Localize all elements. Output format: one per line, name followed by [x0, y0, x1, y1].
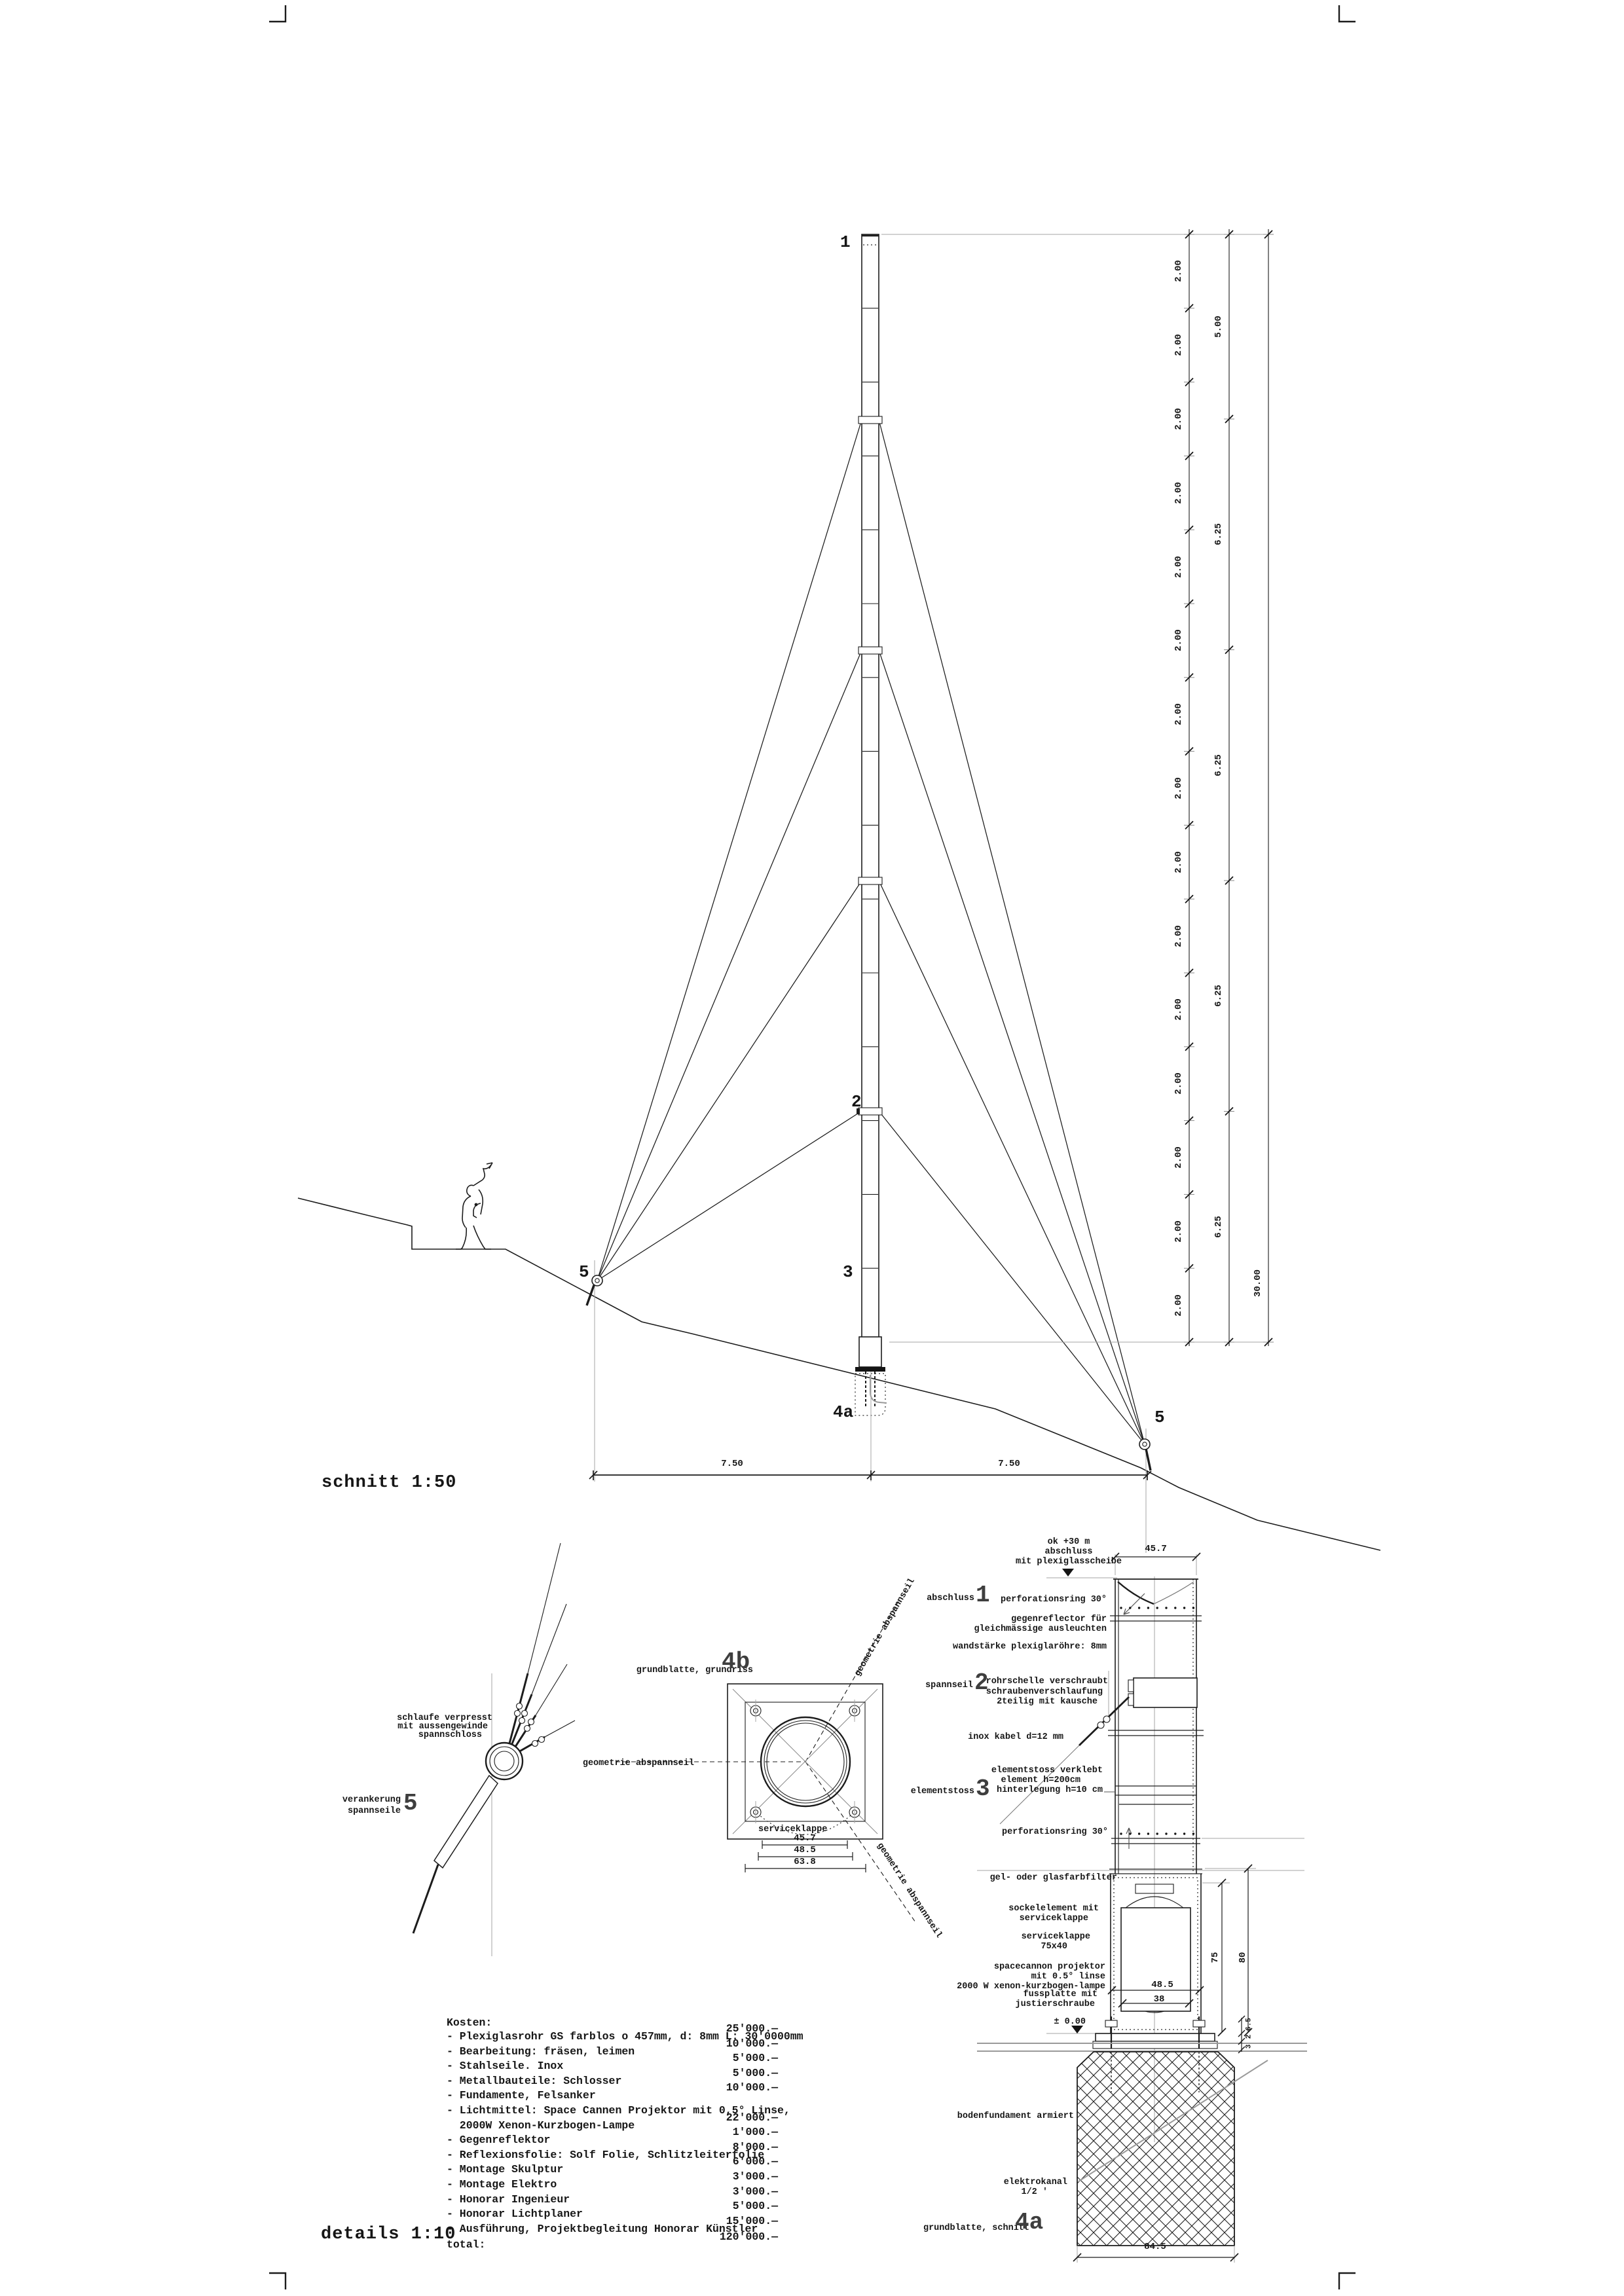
- lbl-hatch-1: serviceklappe: [1022, 1932, 1090, 1942]
- plan-dim-3: 63.8: [794, 1857, 816, 1867]
- cost-item: - Fundamente, Felsanker: [447, 2089, 596, 2102]
- col-callout-3-label: elementstoss: [911, 1787, 974, 1797]
- dim-label-2m: 2.00: [1173, 1294, 1184, 1317]
- col-callout-2-label: spannseil: [925, 1681, 973, 1691]
- cost-price: 6'000.—: [733, 2155, 778, 2168]
- callout-5-left: 5: [579, 1262, 589, 1282]
- cost-item: - Honorar Lichtplaner: [447, 2208, 583, 2220]
- dim-inner-width: 48.5: [1151, 1980, 1173, 1990]
- perforation-dot: [1129, 1607, 1131, 1609]
- perforation-dot: [1183, 1607, 1185, 1609]
- lbl-joint-2: element h=200cm: [1001, 1776, 1080, 1786]
- lbl-conduit-2: 1/2 ': [1021, 2187, 1048, 2198]
- section-drawing: [298, 229, 1380, 1553]
- dim-label-2m: 2.00: [1173, 334, 1184, 356]
- section-title: schnitt 1:50: [322, 1473, 456, 1493]
- perforation-dot: [1138, 1832, 1140, 1834]
- cost-item: - Montage Elektro: [447, 2178, 557, 2191]
- col-top-note-3: mit plexiglasscheibe: [1016, 1557, 1122, 1567]
- cost-price: 22'000.—: [726, 2111, 778, 2124]
- dim-label-2m: 2.00: [1173, 1146, 1184, 1169]
- anchor-note-3: spannschloss: [418, 1730, 482, 1741]
- drawing-sheet: schnitt 1:50 details 1:10 1 2 3 4a 5 5 7…: [0, 0, 1624, 2296]
- lbl-socket-2: serviceklappe: [1020, 1914, 1088, 1924]
- costs-total-label: total:: [447, 2238, 485, 2251]
- cost-price: 5'000.—: [733, 2052, 778, 2064]
- cost-item: - Gegenreflektor: [447, 2134, 550, 2146]
- base-dim-left: 7.50: [721, 1459, 743, 1469]
- mast: [862, 234, 879, 1342]
- plan-axis-label: geometrie abspannseil: [583, 1758, 694, 1769]
- costs-heading: Kosten:: [447, 2016, 492, 2029]
- dim-plate-1: 6.5: [1246, 2018, 1254, 2031]
- perforation-dot: [1192, 1607, 1194, 1609]
- callout-4a: 4a: [833, 1402, 853, 1422]
- dim-label-2m: 2.00: [1173, 1072, 1184, 1095]
- dim-label-mid: 5.00: [1213, 316, 1224, 338]
- cost-price: 10'000.—: [726, 2081, 778, 2094]
- lbl-reflector-2: gleichmässige ausleuchten: [974, 1624, 1107, 1635]
- cost-price: 5'000.—: [733, 2200, 778, 2212]
- lbl-foot-1: fussplatte mit: [1024, 1990, 1098, 2000]
- dim-label-2m: 2.00: [1173, 999, 1184, 1021]
- perforation-dot: [1183, 1832, 1185, 1834]
- dim-label-2m: 2.00: [1173, 408, 1184, 430]
- cost-item: - Reflexionsfolie: Solf Folie, Schlitzle…: [447, 2149, 764, 2161]
- col-callout-3: 3: [976, 1776, 990, 1803]
- cost-item: - Metallbauteile: Schlosser: [447, 2075, 621, 2087]
- rings: [1108, 1616, 1204, 1874]
- cost-price: 5'000.—: [733, 2067, 778, 2079]
- cost-item: - Stahlseile. Inox: [447, 2060, 563, 2072]
- person-figure: [456, 1163, 492, 1249]
- cost-item: - Ausführung, Projektbegleitung Honorar …: [447, 2223, 758, 2235]
- details-title: details 1:10: [321, 2225, 456, 2245]
- col-top-note-2: abschluss: [1045, 1547, 1093, 1558]
- dim-label-mid: 6.25: [1213, 1216, 1224, 1238]
- dim-plate-3: 3: [1246, 2045, 1254, 2049]
- corner-marks: [269, 5, 1356, 2289]
- foundation-block: [1077, 2052, 1268, 2246]
- lbl-perforation-bottom: perforationsring 30°: [1002, 1827, 1108, 1838]
- callout-2: 2: [851, 1092, 862, 1112]
- dim-base-width: 84.5: [1144, 2242, 1166, 2252]
- perforation-dot: [1174, 1832, 1176, 1834]
- dim-label-total: 30.00: [1253, 1269, 1263, 1297]
- dim-label-mid: 6.25: [1213, 985, 1224, 1007]
- perforation-dot: [1156, 1607, 1158, 1609]
- lbl-wall: wandstärke plexiglaröhre: 8mm: [953, 1642, 1107, 1652]
- leader-arrow-top: [1124, 1594, 1145, 1614]
- lbl-screw-2: 2teilig mit kausche: [997, 1697, 1098, 1707]
- lbl-socket-1: sockelelement mit: [1008, 1904, 1099, 1914]
- perforation-dot: [1147, 1832, 1149, 1834]
- cost-price: 10'000.—: [726, 2037, 778, 2050]
- dim-label-2m: 2.00: [1173, 261, 1184, 283]
- lbl-clamp: rohrschelle verschraubt: [986, 1677, 1108, 1687]
- lbl-projector-1: spacecannon projektor: [994, 1962, 1105, 1973]
- callout-1: 1: [840, 232, 851, 252]
- dim-height-80: 80: [1238, 1952, 1248, 1963]
- cost-price: 3'000.—: [733, 2170, 778, 2183]
- base-dim-right: 7.50: [998, 1459, 1020, 1469]
- cost-item: - Montage Skulptur: [447, 2163, 563, 2176]
- lbl-perforation-top: perforationsring 30°: [1001, 1595, 1107, 1605]
- cost-price: 1'000.—: [733, 2126, 778, 2138]
- col-callout-4a: 4a: [1015, 2209, 1043, 2236]
- lbl-projector-2: mit 0.5° linse: [1031, 1972, 1105, 1982]
- dim-label-2m: 2.00: [1173, 630, 1184, 652]
- lbl-foundation: bodenfundament armiert: [957, 2111, 1074, 2122]
- cost-item: - Honorar Ingenieur: [447, 2193, 570, 2206]
- lbl-cable: inox kabel d=12 mm: [968, 1732, 1063, 1743]
- lbl-screw-1: schraubenverschlaufung: [986, 1687, 1103, 1698]
- cost-item: 2000W Xenon-Kurzbogen-Lampe: [447, 2119, 635, 2132]
- anchor-detail: [413, 1543, 575, 1956]
- perforation-dot: [1165, 1607, 1167, 1609]
- perforation-dot: [1165, 1832, 1167, 1834]
- dim-label-2m: 2.00: [1173, 777, 1184, 799]
- lbl-foot-2: justierschraube: [1015, 1999, 1095, 2010]
- cost-item: - Bearbeitung: fräsen, leimen: [447, 2045, 635, 2058]
- col-callout-1: 1: [976, 1582, 990, 1609]
- lbl-joint-1: elementstoss verklebt: [991, 1766, 1103, 1776]
- callout-5-right: 5: [1154, 1408, 1165, 1427]
- anchor-title-1: verankerung: [342, 1795, 401, 1806]
- drawing-linework: [0, 0, 1624, 2296]
- lbl-level-zero: ± 0.00: [1054, 2017, 1086, 2028]
- col-callout-1-label: abschluss: [927, 1594, 974, 1604]
- dim-label-2m: 2.00: [1173, 925, 1184, 947]
- dim-label-2m: 2.00: [1173, 703, 1184, 725]
- col-callout-4a-label: grundblatte, schnitt: [923, 2223, 1029, 2234]
- right-anchor: [1139, 1429, 1151, 1553]
- plan-dim-2: 48.5: [794, 1845, 816, 1855]
- anchor-callout-5: 5: [403, 1790, 418, 1817]
- perforation-dot: [1147, 1607, 1149, 1609]
- callout-3: 3: [843, 1262, 853, 1282]
- dim-top-width: 45.7: [1145, 1544, 1167, 1554]
- dim-label-mid: 6.25: [1213, 523, 1224, 545]
- terrain-line: [298, 1198, 1380, 1550]
- dim-label-2m: 2.00: [1173, 482, 1184, 504]
- dim-label-2m: 2.00: [1173, 851, 1184, 873]
- height-dimensions: [881, 229, 1274, 1346]
- cost-price: 25'000.—: [726, 2022, 778, 2035]
- dim-label-2m: 2.00: [1173, 556, 1184, 578]
- dim-height-75: 75: [1210, 1952, 1221, 1963]
- lbl-filter: gel- oder glasfarbfilter: [990, 1873, 1117, 1884]
- perforation-dot: [1174, 1607, 1176, 1609]
- perforation-dot: [1156, 1832, 1158, 1834]
- lbl-joint-3: hinterlegung h=10 cm: [997, 1785, 1103, 1796]
- dim-plate-2: 2: [1246, 2035, 1254, 2039]
- dim-label-mid: 6.25: [1213, 754, 1224, 776]
- anchor-title-2: spannseile: [348, 1806, 401, 1817]
- perforation-dot: [1120, 1607, 1122, 1609]
- perforation-dot: [1120, 1832, 1122, 1834]
- lbl-conduit-1: elektrokanal: [1004, 2178, 1067, 2188]
- plate-plan-callout: 4b: [722, 1649, 750, 1676]
- cost-price: 8'000.—: [733, 2141, 778, 2153]
- dim-lamp-width: 38: [1154, 1994, 1165, 2005]
- plan-hatch-label: serviceklappe: [758, 1825, 827, 1835]
- col-top-note-1: ok +30 m: [1048, 1537, 1090, 1548]
- cost-price: 15'000.—: [726, 2215, 778, 2227]
- cost-price: 3'000.—: [733, 2185, 778, 2198]
- lbl-reflector-1: gegenreflector für: [1011, 1614, 1107, 1625]
- lbl-hatch-2: 75x40: [1041, 1942, 1067, 1952]
- plan-dim-1: 45.7: [794, 1833, 816, 1844]
- perforation-dot: [1192, 1832, 1194, 1834]
- dim-label-2m: 2.00: [1173, 1220, 1184, 1243]
- perforation-dot: [1138, 1607, 1140, 1609]
